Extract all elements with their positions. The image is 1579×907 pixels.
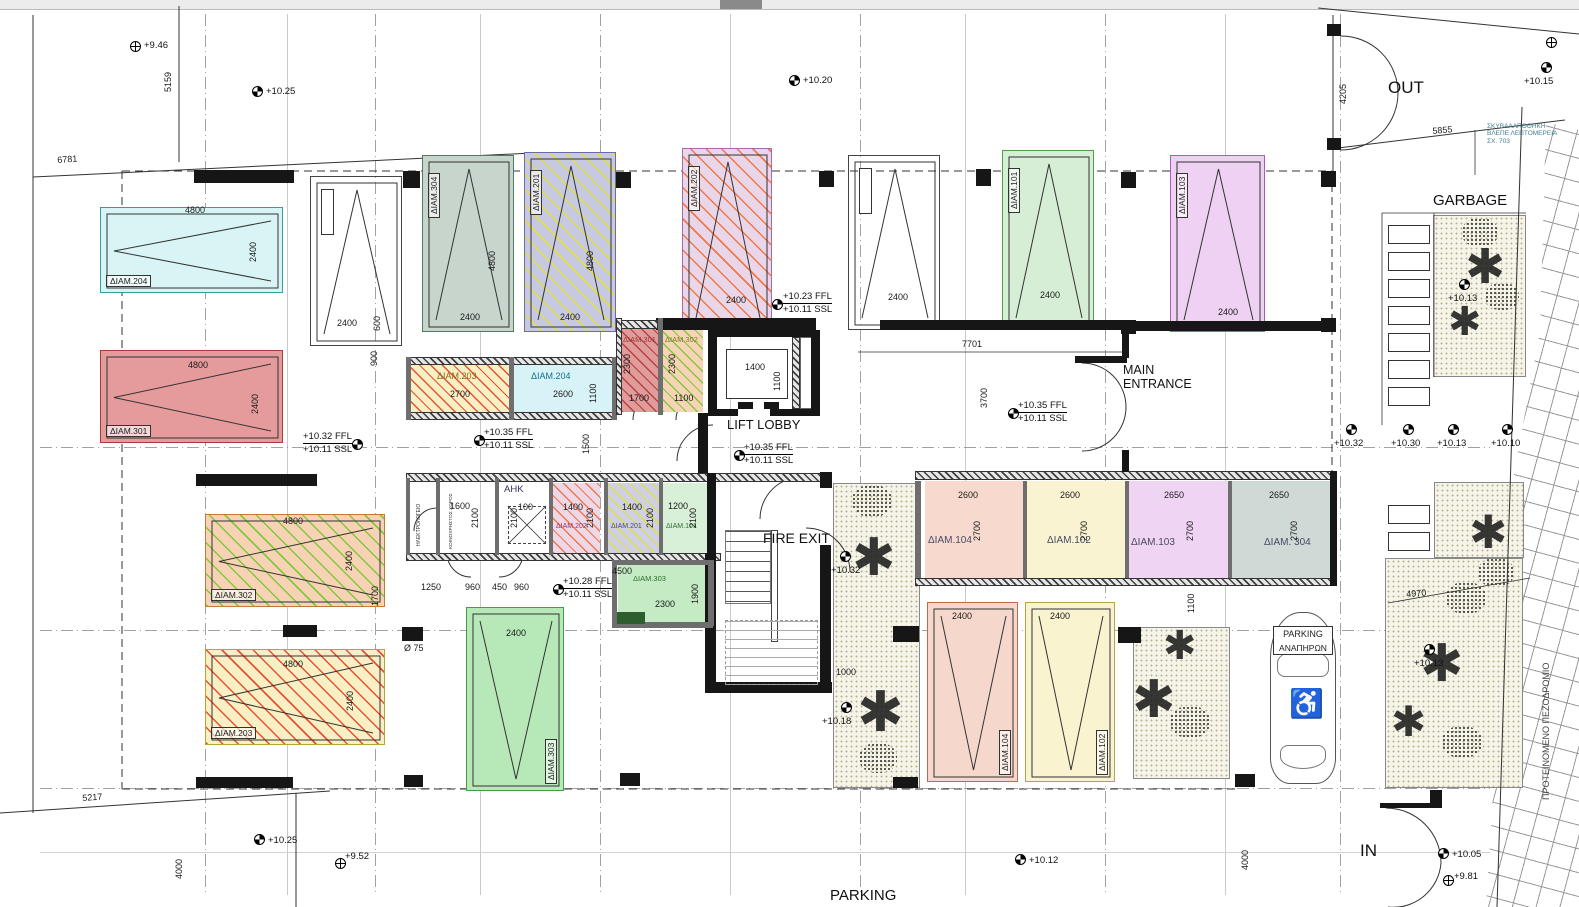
- wall-segment: [1075, 356, 1127, 363]
- parking-space-diam-201: ΔΙΑΜ.201: [524, 152, 616, 332]
- dimension-text: 1200: [668, 501, 688, 511]
- wall-segment: [880, 320, 1127, 330]
- wall-segment: [893, 777, 918, 788]
- wall-segment: [1430, 790, 1442, 804]
- dimension-text: 2100: [470, 508, 480, 528]
- wall-segment: [1127, 321, 1329, 331]
- dimension-text: 2700: [972, 521, 982, 541]
- ssl-line: +10.11 SSL: [783, 304, 832, 315]
- wall-segment: [404, 775, 423, 787]
- label-out: OUT: [1388, 78, 1424, 98]
- dimension-text: 2400: [726, 295, 746, 305]
- column-recess: [321, 189, 334, 235]
- wall-segment: [738, 402, 753, 409]
- dimension-text: 900: [369, 351, 379, 366]
- dimension-text: 4000: [1240, 850, 1250, 870]
- dimension-text: 4000: [174, 859, 184, 879]
- dimension-text: 1500: [581, 434, 591, 454]
- dimension-text: 2400: [952, 611, 972, 621]
- wall-hatched: [915, 471, 1337, 480]
- wall-hatched: [604, 478, 608, 555]
- wall-segment: [893, 626, 919, 642]
- step: [1388, 360, 1430, 379]
- wall-segment: [1235, 774, 1255, 787]
- dimension-text: 2650: [1269, 490, 1289, 500]
- wall-hatched: [618, 320, 658, 329]
- label-electrical-room: ΗΛΕΚΤΡΟΛΟΓΕΙΟ: [417, 504, 423, 546]
- wall-segment: [811, 330, 820, 416]
- wall-segment: [820, 545, 831, 692]
- wall-segment: [820, 472, 832, 488]
- dimension-text: 4800: [487, 251, 497, 271]
- dimension-text: 2400: [345, 691, 355, 711]
- level-marker-icon: [254, 834, 265, 845]
- ffl-line: +10.32 FFL: [303, 431, 352, 444]
- dimension-text: 4800: [188, 360, 208, 370]
- wall-segment: [194, 170, 294, 183]
- ffl-line: +10.35 FFL: [744, 442, 793, 455]
- level-marker-text: +9.52: [345, 851, 369, 862]
- dimension-text: 2700: [450, 389, 470, 399]
- dimension-text: 6781: [57, 154, 78, 165]
- ffl-ssl-annotation: +10.35 FFL+10.11 SSL: [1018, 400, 1067, 424]
- dimension-text: 2400: [248, 242, 258, 262]
- parking-space-label: ΔΙΑΜ.303: [545, 739, 557, 784]
- dimension-text: 2600: [958, 490, 978, 500]
- wall-segment: [708, 330, 717, 416]
- step: [1388, 532, 1430, 551]
- disabled-parking-sign-line2: ΑΝΑΠΗΡΩΝ: [1274, 641, 1332, 655]
- dimension-text: 1100: [1186, 594, 1196, 613]
- parking-space-label: ΔΙΑΜ.103: [1176, 173, 1188, 218]
- dimension-text: 4800: [185, 205, 205, 215]
- parking-space-label: ΔΙΑΜ.202: [688, 166, 700, 211]
- level-marker-text: +10.18: [822, 716, 851, 727]
- label-store-201: ΔΙΑΜ.201: [611, 523, 642, 531]
- label-store-302: ΔΙΑΜ.302: [665, 336, 698, 345]
- level-marker-icon: [1424, 644, 1435, 655]
- wall-hatched: [658, 318, 663, 415]
- label-store-103: ΔΙΑΜ.103: [1131, 537, 1175, 549]
- label-sidewalk-note: ΠΡΟΤΕΙΝΟΜΕΝΟ ΠΕΖΟΔΡΟΜΙΟ: [1541, 663, 1551, 800]
- dimension-text: 2400: [1040, 290, 1060, 300]
- wall-hatched: [1228, 481, 1232, 578]
- level-marker-icon: [1015, 854, 1026, 865]
- dimension-text: 1700: [629, 393, 649, 403]
- wall-segment: [656, 318, 816, 330]
- dimension-text: 960: [514, 582, 529, 592]
- dimension-text: 4800: [283, 516, 303, 526]
- dimension-text: 2650: [1164, 490, 1184, 500]
- ffl-ssl-annotation: +10.23 FFL+10.11 SSL: [783, 291, 832, 315]
- wall-hatched: [612, 560, 713, 565]
- step: [1388, 225, 1430, 244]
- label-in: IN: [1360, 841, 1377, 861]
- wall-segment: [402, 627, 423, 641]
- dimension-text: 2400: [1050, 611, 1070, 621]
- parking-space-label: ΔΙΑΜ.301: [106, 425, 151, 437]
- dimension-text: 2600: [553, 389, 573, 399]
- ffl-line: +10.23 FFL: [783, 291, 832, 304]
- dimension-text: 1900: [690, 584, 700, 604]
- label-store-202: ΔΙΑΜ.202: [556, 523, 587, 531]
- level-marker-text: +10.13: [1437, 438, 1466, 449]
- wall-segment: [1321, 171, 1336, 187]
- dimension-text: 2300: [655, 599, 675, 609]
- fire-exit-stairs: [723, 528, 820, 687]
- dimension-text: 1700: [370, 586, 380, 606]
- dimension-text: 600: [372, 316, 382, 331]
- wall-segment: [770, 409, 820, 416]
- dimension-text: 1100: [674, 393, 693, 403]
- dimension-text: 1600: [450, 501, 470, 511]
- ffl-ssl-annotation: +10.35 FFL+10.11 SSL: [744, 442, 793, 466]
- dimension-text: 2400: [506, 628, 526, 638]
- dimension-text: 5159: [163, 72, 173, 92]
- parking-space-label: ΔΙΑΜ.203: [211, 727, 256, 739]
- level-marker-icon: [1403, 424, 1414, 435]
- dimension-text: 4500: [612, 566, 632, 576]
- wall-hatched: [406, 473, 832, 482]
- step: [1388, 333, 1430, 352]
- wall-segment: [196, 474, 317, 486]
- dimension-text: 2400: [337, 318, 357, 328]
- label-store-304: ΔΙΑΜ. 304: [1264, 537, 1311, 549]
- level-marker-icon: [772, 299, 783, 310]
- level-marker-text: +10.10: [1491, 438, 1520, 449]
- level-marker-icon: [252, 86, 263, 97]
- level-marker-icon: [1546, 37, 1557, 48]
- level-marker-text: +10.30: [1391, 438, 1420, 449]
- dimension-text: 1400: [563, 502, 583, 512]
- wall-segment: [976, 169, 991, 186]
- wall-segment: [196, 777, 293, 788]
- level-marker-icon: [840, 551, 851, 562]
- ffl-line: +10.28 FFL: [563, 576, 612, 589]
- level-marker-text: +10.32: [831, 565, 860, 576]
- dimension-text: 1400: [745, 362, 765, 372]
- level-marker-text: +10.05: [1452, 849, 1481, 860]
- level-marker-text: +10.15: [1524, 76, 1553, 87]
- disabled-parking-sign-line1: PARKING: [1274, 627, 1332, 641]
- wall-hatched: [495, 478, 499, 555]
- level-marker-icon: [130, 41, 141, 52]
- ffl-ssl-annotation: +10.35 FFL+10.11 SSL: [484, 427, 533, 451]
- wall-hatched: [406, 357, 411, 420]
- level-marker-text: +10.13: [1448, 293, 1477, 304]
- wall-segment: [1327, 24, 1341, 36]
- ffl-ssl-annotation: +10.28 FFL+10.11 SSL: [563, 576, 612, 600]
- parking-space-label: ΔΙΑΜ.201: [530, 170, 542, 215]
- wall-segment: [1122, 330, 1129, 358]
- column-recess: [859, 168, 872, 214]
- wall-segment: [283, 625, 317, 637]
- wall-segment: [764, 402, 779, 409]
- dimension-text: 2400: [1218, 307, 1238, 317]
- dimension-text: 2300: [667, 354, 677, 374]
- level-marker-icon: [841, 702, 852, 713]
- ssl-line: +10.11 SSL: [744, 455, 793, 466]
- parking-space-label: ΔΙΑΜ.304: [428, 173, 440, 218]
- level-marker-text: +9.46: [144, 40, 168, 51]
- dimension-text: 2700: [1079, 521, 1089, 541]
- dimension-text: 2600: [1060, 490, 1080, 500]
- level-marker-text: +10.20: [803, 75, 832, 86]
- wall-hatched: [708, 560, 714, 626]
- wall-segment: [1122, 450, 1129, 472]
- wall-hatched: [915, 578, 1337, 586]
- disabled-parking-sign: PARKINGΑΝΑΠΗΡΩΝ: [1273, 626, 1333, 655]
- wall-segment: [708, 409, 738, 416]
- parking-space-label: ΔΙΑΜ.101: [1008, 168, 1020, 213]
- label-ahk-room: ΑΗΚ: [504, 485, 524, 496]
- level-marker-text: +10.12: [1029, 855, 1058, 866]
- floor-plan-canvas: ✱✱✱✱✱✱✱✱✱ΔΙΑΜ.204ΔΙΑΜ.304ΔΙΑΜ.201ΔΙΑΜ.20…: [0, 0, 1579, 907]
- dimension-text: 1100: [772, 372, 782, 391]
- dimension-text: 2700: [1185, 521, 1195, 541]
- wall-hatched: [406, 478, 410, 555]
- dimension-text: 2100: [645, 508, 655, 528]
- step: [1388, 279, 1430, 298]
- dimension-text: 2100: [509, 508, 519, 528]
- level-marker-text: +10.32: [1334, 438, 1363, 449]
- dimension-text: 2100: [585, 508, 595, 528]
- label-fire-exit: FIRE EXIT: [763, 530, 830, 546]
- step: [1388, 387, 1430, 406]
- ffl-ssl-annotation: +10.32 FFL+10.11 SSL: [303, 431, 352, 455]
- wall-segment: [403, 171, 420, 188]
- level-marker-icon: [1459, 279, 1470, 290]
- wall-segment: [1330, 471, 1337, 586]
- dimension-text: 2400: [250, 394, 260, 414]
- level-marker-icon: [352, 439, 363, 450]
- dimension-text: 450: [492, 582, 507, 592]
- car-rear-window: [1280, 745, 1326, 769]
- dimension-text: 100: [518, 502, 533, 512]
- label-store-204: ΔΙΑΜ.204: [531, 371, 571, 381]
- label-store-303: ΔΙΑΜ.303: [633, 575, 666, 584]
- parking-space-diam-304: ΔΙΑΜ.304: [422, 155, 514, 332]
- dimension-text: 2400: [460, 312, 480, 322]
- parking-space-diam-101: ΔΙΑΜ.101: [1002, 150, 1094, 330]
- wall-segment: [1380, 803, 1442, 808]
- level-marker-icon: [789, 75, 800, 86]
- parking-space-label: ΔΙΑΜ.204: [106, 275, 151, 287]
- step: [1388, 306, 1430, 325]
- parking-space-visitor-2: [848, 155, 940, 330]
- dimension-text: 2100: [688, 508, 698, 528]
- step: [1388, 505, 1430, 524]
- dimension-text: 3700: [979, 388, 989, 408]
- wall-hatched: [1023, 481, 1027, 578]
- dimension-text: 5217: [82, 792, 103, 803]
- wall-segment: [819, 171, 834, 187]
- wall-hatched: [1125, 481, 1129, 578]
- level-marker-icon: [1541, 62, 1552, 73]
- dimension-text: 2400: [888, 292, 908, 302]
- ssl-line: +10.11 SSL: [563, 589, 612, 600]
- wall-hatched: [617, 612, 645, 624]
- wall-segment: [1118, 627, 1141, 643]
- level-marker-icon: [1502, 424, 1513, 435]
- wall-segment: [1327, 138, 1341, 150]
- stair-flight: [725, 620, 818, 685]
- dimension-text: Ø 75: [404, 643, 424, 653]
- parking-space-label: ΔΙΑΜ.302: [211, 589, 256, 601]
- wall-hatched: [436, 478, 440, 555]
- ssl-line: +10.11 SSL: [1018, 413, 1067, 424]
- parking-space-diam-102: ΔΙΑΜ.102: [1025, 602, 1115, 782]
- dimension-text: 7701: [962, 339, 982, 349]
- level-marker-icon: [1448, 424, 1459, 435]
- label-store-203: ΔΙΑΜ.203: [437, 371, 477, 381]
- dimension-text: 960: [465, 582, 480, 592]
- wall-segment: [620, 773, 640, 786]
- wall-segment: [1121, 172, 1136, 188]
- wall-segment: [616, 172, 631, 188]
- wall-segment: [1321, 318, 1336, 332]
- label-store-301: ΔΙΑΜ.301: [623, 336, 656, 345]
- dimension-text: 4800: [283, 659, 303, 669]
- ffl-line: +10.35 FFL: [484, 427, 533, 440]
- wall-hatched: [549, 478, 553, 555]
- wheelchair-icon: ♿: [1289, 687, 1324, 720]
- level-marker-icon: [1443, 875, 1454, 886]
- level-marker-text: +9.81: [1454, 871, 1478, 882]
- level-marker-text: +10.25: [268, 835, 297, 846]
- dimension-text: 4800: [585, 251, 595, 271]
- dimension-text: 5855: [1432, 124, 1453, 136]
- level-marker-icon: [1346, 424, 1357, 435]
- dimension-text: 2400: [560, 312, 580, 322]
- step: [1388, 252, 1430, 271]
- wall-segment: [698, 413, 708, 475]
- label-main-entrance: MAIN ENTRANCE: [1123, 363, 1192, 392]
- room-s101: [663, 483, 707, 553]
- level-marker-text: +10.13: [1414, 658, 1443, 669]
- wall-hatched: [659, 478, 663, 555]
- ffl-line: +10.35 FFL: [1018, 400, 1067, 413]
- label-garbage: GARBAGE: [1433, 192, 1507, 209]
- wall-hatched: [915, 481, 921, 578]
- dimension-text: 1100: [588, 384, 598, 403]
- parking-space-diam-302: ΔΙΑΜ.302: [205, 514, 385, 607]
- dimension-text: 1250: [421, 582, 441, 592]
- wall-hatched: [792, 337, 800, 409]
- dimension-text: 1400: [622, 502, 642, 512]
- level-marker-icon: [1438, 848, 1449, 859]
- wall-hatched: [509, 357, 514, 420]
- label-lift-lobby: LIFT LOBBY: [727, 418, 800, 433]
- label-store-104: ΔΙΑΜ.104: [928, 535, 972, 547]
- dimension-text: 2400: [344, 551, 354, 571]
- dimension-text: 1000: [836, 667, 856, 677]
- parking-space-label: ΔΙΑΜ.104: [999, 730, 1011, 775]
- dimension-text: 2700: [1289, 521, 1299, 541]
- wall-segment: [707, 473, 716, 555]
- ssl-line: +10.11 SSL: [484, 440, 533, 451]
- parking-space-diam-104: ΔΙΑΜ.104: [927, 602, 1018, 782]
- dimension-text: 2300: [622, 354, 632, 374]
- level-marker-text: +10.25: [266, 86, 295, 97]
- label-parking-bottom: PARKING: [830, 887, 896, 904]
- wall-segment: [708, 330, 820, 337]
- label-garbage-note: ΣΚΥΒΑΛΑΠΟΘΗΚΗ - ΒΛΕΠΕ ΛΕΠΤΟΜΕΡΕΙΑ ΣΧ. 70…: [1487, 123, 1557, 145]
- ssl-line: +10.11 SSL: [303, 444, 352, 455]
- parking-space-label: ΔΙΑΜ.102: [1096, 730, 1108, 775]
- dimension-text: 4205: [1338, 84, 1348, 104]
- dimension-text: 4970: [1406, 588, 1427, 599]
- parking-space-diam-103: ΔΙΑΜ.103: [1170, 155, 1265, 332]
